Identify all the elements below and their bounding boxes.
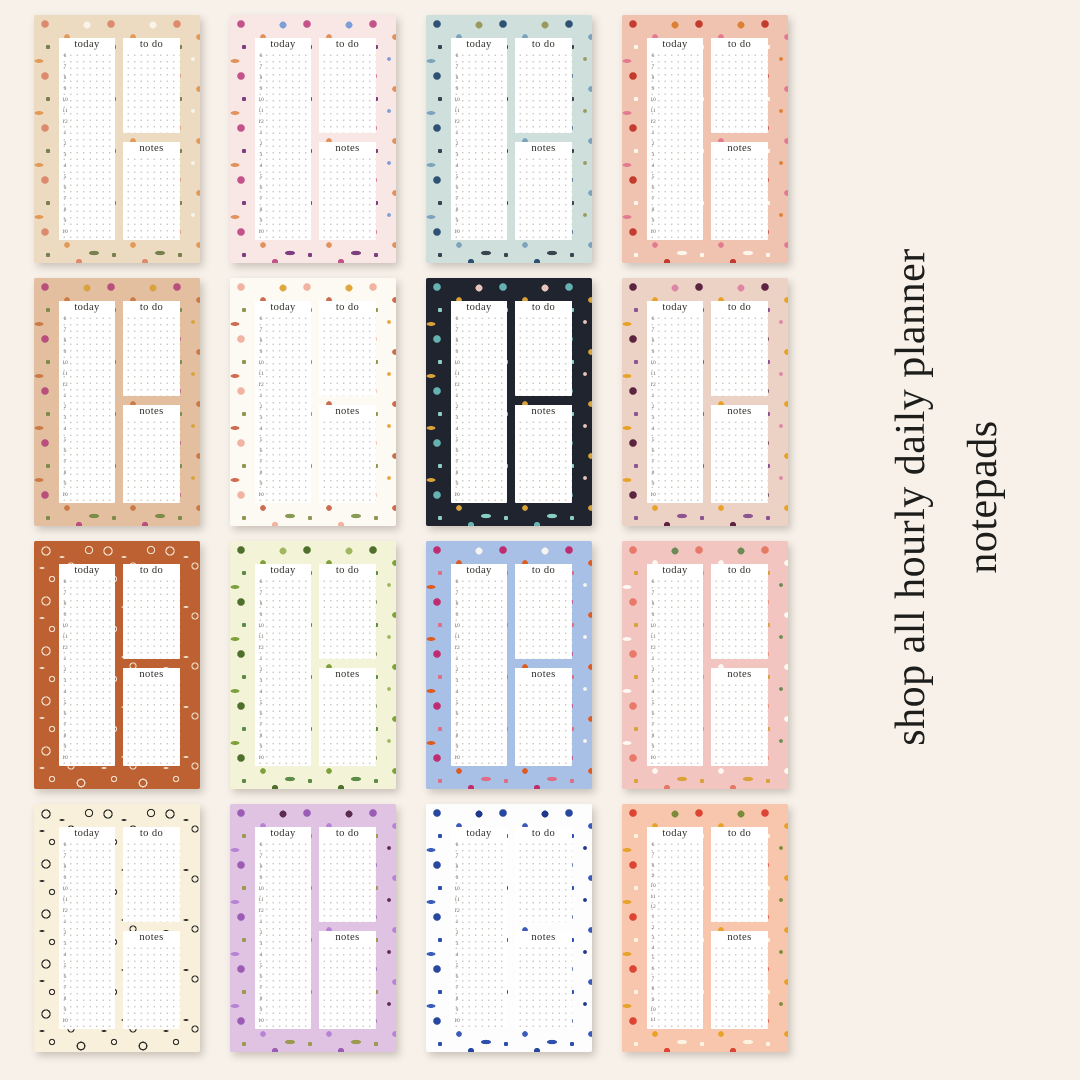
todo-panel: to do — [711, 827, 768, 922]
hour-column: 678910111212345678910 — [453, 54, 461, 235]
hour-label: 9 — [61, 613, 69, 619]
hour-label: 1 — [61, 657, 69, 663]
hour-label: 10 — [649, 624, 657, 630]
hour-label: 3 — [61, 153, 69, 159]
todo-label: to do — [711, 301, 768, 315]
hour-label: 11 — [649, 635, 657, 641]
hour-label: 9 — [453, 350, 461, 356]
hour-label: 4 — [453, 690, 461, 696]
hour-label: 11 — [257, 109, 265, 115]
todo-panel: to do — [319, 827, 376, 922]
hour-label: 1 — [453, 131, 461, 137]
todo-label: to do — [319, 564, 376, 578]
hour-label: 2 — [649, 142, 657, 148]
hour-label: 10 — [61, 361, 69, 367]
hour-label: 7 — [649, 328, 657, 334]
hour-label: 3 — [649, 416, 657, 422]
hour-column: 67891011121234567891011 — [649, 843, 657, 1024]
hour-label: 8 — [257, 339, 265, 345]
hour-label: 2 — [649, 668, 657, 674]
hour-label: 9 — [649, 87, 657, 93]
hour-label: 8 — [257, 997, 265, 1003]
hour-label: 2 — [649, 405, 657, 411]
todo-label: to do — [123, 827, 180, 841]
todo-label: to do — [123, 564, 180, 578]
today-label: today — [451, 564, 507, 578]
notepad-grid: today 678910111212345678910 to do notes … — [34, 15, 788, 1052]
hour-label: 7 — [257, 854, 265, 860]
hour-label: 5 — [649, 175, 657, 181]
today-label: today — [59, 38, 115, 52]
todo-label: to do — [319, 38, 376, 52]
hour-label: 10 — [257, 98, 265, 104]
hour-label: 7 — [61, 328, 69, 334]
hour-label: 11 — [649, 372, 657, 378]
hour-label: 11 — [649, 895, 657, 901]
hour-label: 6 — [649, 967, 657, 973]
hour-label: 7 — [649, 197, 657, 203]
hour-column: 678910111212345678910 — [257, 843, 265, 1024]
hour-label: 7 — [61, 591, 69, 597]
notes-panel: notes — [711, 668, 768, 766]
hour-label: 12 — [453, 646, 461, 652]
hour-column: 678910111212345678910 — [257, 317, 265, 498]
notes-panel: notes — [711, 405, 768, 503]
hour-label: 6 — [257, 186, 265, 192]
hour-label: 12 — [649, 383, 657, 389]
hour-label: 6 — [257, 843, 265, 849]
hour-column: 678910111212345678910 — [453, 580, 461, 761]
hour-label: 10 — [649, 1008, 657, 1014]
today-panel: today 67891011121234567891011 — [647, 827, 703, 1029]
hour-label: 9 — [61, 1008, 69, 1014]
hour-label: 3 — [453, 416, 461, 422]
hour-label: 9 — [649, 874, 657, 880]
notes-panel: notes — [319, 405, 376, 503]
hour-label: 12 — [649, 120, 657, 126]
hour-column: 678910111212345678910 — [649, 317, 657, 498]
notepad-green-botanical-leaves: today 678910111212345678910 to do notes — [230, 541, 396, 789]
hour-label: 9 — [257, 745, 265, 751]
notes-label: notes — [123, 405, 180, 419]
hour-label: 10 — [649, 98, 657, 104]
notepad-dusty-blue-floral: today 678910111212345678910 to do notes — [426, 15, 592, 263]
notes-label: notes — [319, 405, 376, 419]
hour-label: 6 — [649, 186, 657, 192]
hour-label: 5 — [257, 438, 265, 444]
hour-label: 6 — [61, 580, 69, 586]
hour-label: 7 — [257, 65, 265, 71]
notes-panel: notes — [123, 668, 180, 766]
hour-label: 11 — [257, 898, 265, 904]
hour-label: 6 — [257, 712, 265, 718]
hour-label: 10 — [61, 493, 69, 499]
hour-label: 8 — [257, 602, 265, 608]
hour-label: 7 — [649, 460, 657, 466]
hour-label: 5 — [453, 438, 461, 444]
notes-panel: notes — [711, 142, 768, 240]
hour-label: 8 — [453, 76, 461, 82]
hour-label: 11 — [453, 109, 461, 115]
today-label: today — [59, 564, 115, 578]
hour-label: 3 — [61, 679, 69, 685]
todo-panel: to do — [319, 564, 376, 659]
caption: shop all hourly daily planner notepads — [875, 187, 1019, 807]
hour-label: 7 — [257, 460, 265, 466]
hour-column: 678910111212345678910 — [61, 317, 69, 498]
notes-label: notes — [319, 142, 376, 156]
hour-label: 6 — [257, 580, 265, 586]
notepad-navy-block-print: today 678910111212345678910 to do notes — [426, 804, 592, 1052]
hour-label: 3 — [649, 936, 657, 942]
hour-label: 2 — [61, 931, 69, 937]
hour-label: 8 — [649, 471, 657, 477]
hour-label: 8 — [257, 734, 265, 740]
todo-panel: to do — [515, 827, 572, 922]
notes-label: notes — [711, 405, 768, 419]
hour-column: 678910111212345678910 — [61, 843, 69, 1024]
hour-label: 9 — [649, 219, 657, 225]
today-label: today — [451, 301, 507, 315]
hour-label: 10 — [61, 887, 69, 893]
today-label: today — [255, 564, 311, 578]
hour-label: 3 — [257, 679, 265, 685]
hour-label: 6 — [453, 580, 461, 586]
hour-label: 12 — [453, 120, 461, 126]
hour-label: 9 — [257, 219, 265, 225]
hour-label: 4 — [257, 164, 265, 170]
hour-label: 8 — [61, 339, 69, 345]
todo-label: to do — [515, 827, 572, 841]
notes-panel: notes — [515, 405, 572, 503]
hour-label: 10 — [61, 624, 69, 630]
hour-column: 678910111212345678910 — [257, 54, 265, 235]
hour-label: 10 — [453, 361, 461, 367]
hour-label: 4 — [61, 427, 69, 433]
hour-label: 8 — [649, 339, 657, 345]
hour-label: 11 — [453, 898, 461, 904]
hour-label: 1 — [257, 657, 265, 663]
hour-label: 9 — [257, 1008, 265, 1014]
hour-label: 8 — [453, 339, 461, 345]
hour-label: 3 — [453, 679, 461, 685]
todo-panel: to do — [515, 564, 572, 659]
hour-label: 12 — [649, 905, 657, 911]
hour-label: 9 — [257, 482, 265, 488]
today-panel: today 678910111212345678910 — [647, 564, 703, 766]
hour-label: 4 — [61, 953, 69, 959]
hour-label: 10 — [61, 230, 69, 236]
hour-column: 678910111212345678910 — [649, 580, 657, 761]
todo-label: to do — [515, 301, 572, 315]
hour-label: 3 — [257, 416, 265, 422]
hour-label: 1 — [453, 394, 461, 400]
notepad-bright-summer-garden: today 678910111212345678910 to do notes — [426, 541, 592, 789]
today-label: today — [255, 827, 311, 841]
hour-label: 10 — [453, 493, 461, 499]
hour-label: 9 — [453, 87, 461, 93]
notes-panel: notes — [319, 142, 376, 240]
hour-label: 9 — [61, 482, 69, 488]
hour-label: 6 — [453, 449, 461, 455]
hour-label: 2 — [649, 926, 657, 932]
hour-label: 5 — [257, 964, 265, 970]
hour-label: 7 — [453, 328, 461, 334]
hour-label: 10 — [649, 361, 657, 367]
notepad-bold-red-poppy: today 678910111212345678910 to do notes — [622, 15, 788, 263]
hour-label: 7 — [453, 723, 461, 729]
hour-label: 5 — [649, 438, 657, 444]
hour-label: 8 — [257, 208, 265, 214]
hour-label: 10 — [649, 884, 657, 890]
hour-label: 3 — [453, 942, 461, 948]
hour-label: 12 — [257, 909, 265, 915]
today-panel: today 678910111212345678910 — [451, 38, 507, 240]
notes-label: notes — [711, 931, 768, 945]
hour-label: 12 — [61, 120, 69, 126]
hour-label: 4 — [257, 427, 265, 433]
today-label: today — [255, 38, 311, 52]
hour-label: 9 — [453, 876, 461, 882]
hour-label: 7 — [257, 328, 265, 334]
hour-label: 3 — [257, 153, 265, 159]
hour-label: 11 — [453, 635, 461, 641]
notes-label: notes — [123, 668, 180, 682]
hour-label: 5 — [61, 701, 69, 707]
hour-label: 9 — [257, 87, 265, 93]
hour-label: 5 — [257, 175, 265, 181]
hour-label: 1 — [61, 394, 69, 400]
notes-label: notes — [319, 668, 376, 682]
todo-panel: to do — [123, 827, 180, 922]
today-panel: today 678910111212345678910 — [59, 301, 115, 503]
hour-label: 1 — [649, 131, 657, 137]
hour-label: 12 — [453, 383, 461, 389]
hour-column: 678910111212345678910 — [453, 843, 461, 1024]
hour-label: 2 — [453, 931, 461, 937]
hour-label: 8 — [649, 987, 657, 993]
hour-label: 11 — [649, 109, 657, 115]
todo-label: to do — [123, 301, 180, 315]
hour-label: 3 — [453, 153, 461, 159]
hour-label: 4 — [453, 953, 461, 959]
hour-label: 8 — [649, 734, 657, 740]
hour-label: 8 — [453, 997, 461, 1003]
hour-label: 6 — [61, 712, 69, 718]
hour-label: 7 — [257, 986, 265, 992]
hour-label: 10 — [61, 98, 69, 104]
hour-label: 1 — [61, 920, 69, 926]
hour-label: 8 — [453, 865, 461, 871]
hour-label: 11 — [257, 372, 265, 378]
hour-label: 5 — [61, 964, 69, 970]
hour-label: 9 — [61, 87, 69, 93]
today-label: today — [451, 38, 507, 52]
hour-label: 4 — [257, 953, 265, 959]
notes-label: notes — [515, 405, 572, 419]
hour-label: 1 — [61, 131, 69, 137]
hour-label: 2 — [257, 931, 265, 937]
hour-label: 7 — [61, 986, 69, 992]
today-label: today — [647, 564, 703, 578]
hour-label: 8 — [61, 76, 69, 82]
hour-label: 2 — [257, 142, 265, 148]
hour-label: 12 — [61, 909, 69, 915]
hour-label: 1 — [257, 920, 265, 926]
notes-label: notes — [123, 931, 180, 945]
notepad-magenta-garden: today 678910111212345678910 to do notes — [34, 278, 200, 526]
todo-panel: to do — [711, 301, 768, 396]
hour-label: 11 — [257, 635, 265, 641]
hour-label: 6 — [453, 186, 461, 192]
todo-panel: to do — [319, 301, 376, 396]
hour-label: 5 — [453, 964, 461, 970]
notes-label: notes — [319, 931, 376, 945]
hour-column: 678910111212345678910 — [453, 317, 461, 498]
hour-label: 4 — [649, 946, 657, 952]
hour-label: 9 — [453, 1008, 461, 1014]
hour-label: 1 — [649, 915, 657, 921]
notes-panel: notes — [515, 142, 572, 240]
notes-label: notes — [515, 142, 572, 156]
today-panel: today 678910111212345678910 — [451, 564, 507, 766]
todo-panel: to do — [515, 301, 572, 396]
hour-label: 8 — [257, 76, 265, 82]
hour-label: 11 — [61, 898, 69, 904]
hour-label: 8 — [453, 471, 461, 477]
hour-label: 7 — [453, 197, 461, 203]
hour-label: 10 — [453, 756, 461, 762]
hour-label: 10 — [61, 1019, 69, 1025]
hour-label: 7 — [453, 460, 461, 466]
hour-label: 7 — [649, 723, 657, 729]
hour-label: 4 — [649, 690, 657, 696]
todo-label: to do — [123, 38, 180, 52]
hour-label: 6 — [453, 54, 461, 60]
notes-label: notes — [515, 668, 572, 682]
hour-label: 2 — [61, 405, 69, 411]
hour-label: 5 — [453, 175, 461, 181]
hour-label: 7 — [649, 853, 657, 859]
today-label: today — [59, 301, 115, 315]
hour-label: 7 — [649, 591, 657, 597]
hour-label: 8 — [649, 602, 657, 608]
todo-panel: to do — [711, 564, 768, 659]
hour-label: 9 — [649, 613, 657, 619]
hour-label: 5 — [649, 956, 657, 962]
notes-label: notes — [515, 931, 572, 945]
hour-label: 8 — [257, 471, 265, 477]
hour-column: 678910111212345678910 — [61, 54, 69, 235]
notes-panel: notes — [123, 405, 180, 503]
hour-label: 9 — [453, 745, 461, 751]
hour-label: 10 — [649, 230, 657, 236]
hour-label: 10 — [257, 756, 265, 762]
hour-label: 10 — [453, 1019, 461, 1025]
hour-label: 3 — [61, 942, 69, 948]
promo-collage: today 678910111212345678910 to do notes … — [0, 0, 1080, 1080]
hour-label: 6 — [61, 317, 69, 323]
hour-label: 1 — [649, 394, 657, 400]
hour-label: 6 — [649, 843, 657, 849]
hour-label: 4 — [453, 427, 461, 433]
hour-label: 2 — [453, 142, 461, 148]
notepad-peach-meadow-floral: today 678910111212345678910 to do notes — [34, 15, 200, 263]
hour-label: 3 — [649, 679, 657, 685]
hour-label: 8 — [61, 997, 69, 1003]
hour-label: 12 — [257, 120, 265, 126]
hour-label: 6 — [61, 843, 69, 849]
todo-label: to do — [515, 38, 572, 52]
hour-label: 9 — [649, 998, 657, 1004]
hour-label: 6 — [649, 317, 657, 323]
hour-label: 4 — [453, 164, 461, 170]
today-panel: today 678910111212345678910 — [255, 301, 311, 503]
notepad-berry-wildflower: today 678910111212345678910 to do notes — [230, 15, 396, 263]
hour-label: 9 — [453, 613, 461, 619]
hour-label: 5 — [61, 438, 69, 444]
hour-label: 9 — [257, 876, 265, 882]
hour-label: 8 — [61, 602, 69, 608]
today-panel: today 678910111212345678910 — [59, 38, 115, 240]
hour-label: 3 — [257, 942, 265, 948]
hour-label: 8 — [61, 865, 69, 871]
hour-label: 8 — [453, 734, 461, 740]
hour-label: 11 — [61, 372, 69, 378]
hour-label: 12 — [61, 646, 69, 652]
hour-label: 6 — [257, 975, 265, 981]
hour-label: 7 — [453, 854, 461, 860]
hour-label: 4 — [61, 164, 69, 170]
hour-column: 678910111212345678910 — [257, 580, 265, 761]
hour-label: 5 — [649, 701, 657, 707]
hour-label: 4 — [61, 690, 69, 696]
hour-label: 9 — [257, 613, 265, 619]
today-panel: today 678910111212345678910 — [255, 564, 311, 766]
hour-label: 7 — [453, 986, 461, 992]
todo-label: to do — [711, 38, 768, 52]
notepad-ink-sketch-botanical: today 678910111212345678910 to do notes — [34, 804, 200, 1052]
hour-label: 12 — [649, 646, 657, 652]
hour-label: 6 — [453, 843, 461, 849]
hour-label: 1 — [453, 657, 461, 663]
hour-label: 3 — [61, 416, 69, 422]
hour-label: 7 — [453, 591, 461, 597]
today-label: today — [451, 827, 507, 841]
notes-panel: notes — [123, 142, 180, 240]
today-panel: today 678910111212345678910 — [451, 827, 507, 1029]
todo-label: to do — [319, 827, 376, 841]
notes-label: notes — [711, 142, 768, 156]
todo-panel: to do — [123, 38, 180, 133]
todo-panel: to do — [515, 38, 572, 133]
hour-label: 10 — [257, 1019, 265, 1025]
hour-label: 9 — [61, 745, 69, 751]
hour-label: 5 — [257, 701, 265, 707]
hour-label: 11 — [61, 109, 69, 115]
hour-label: 7 — [257, 197, 265, 203]
hour-label: 6 — [257, 449, 265, 455]
hour-label: 2 — [453, 405, 461, 411]
notepad-strawberry-patch: today 67891011121234567891011 to do note… — [622, 804, 788, 1052]
hour-label: 6 — [649, 54, 657, 60]
hour-label: 6 — [453, 975, 461, 981]
notes-panel: notes — [515, 668, 572, 766]
hour-label: 12 — [61, 383, 69, 389]
hour-label: 6 — [649, 449, 657, 455]
hour-label: 2 — [453, 668, 461, 674]
today-panel: today 678910111212345678910 — [59, 564, 115, 766]
